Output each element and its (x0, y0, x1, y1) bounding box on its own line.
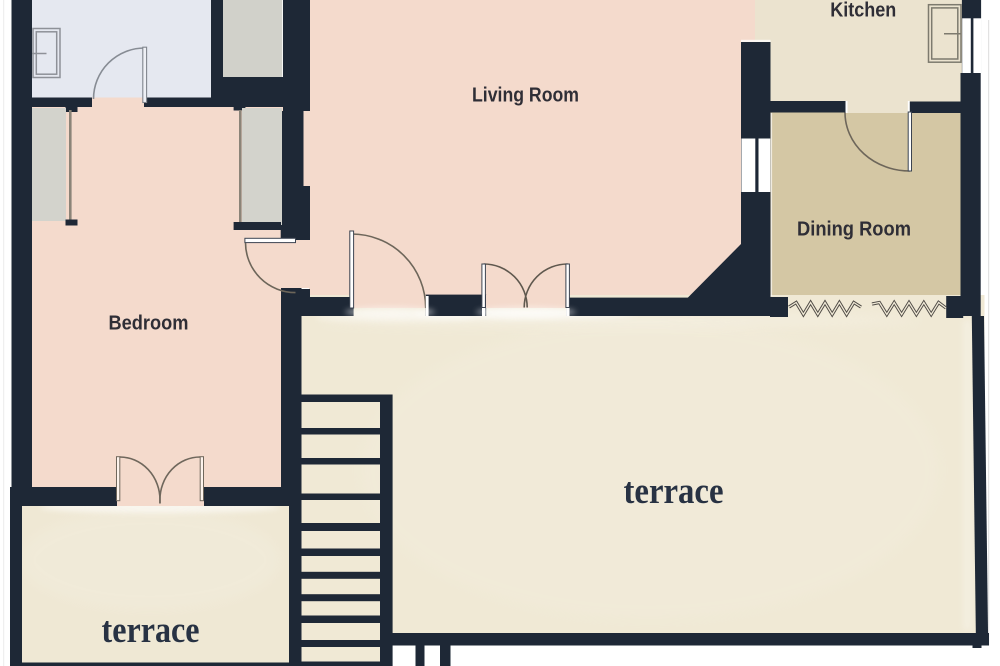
svg-text:Kitchen: Kitchen (830, 0, 896, 22)
svg-text:Living Room: Living Room (472, 84, 579, 106)
svg-text:Dining Room: Dining Room (797, 218, 911, 240)
svg-text:terrace: terrace (624, 471, 724, 512)
svg-text:Bedroom: Bedroom (109, 312, 189, 334)
svg-text:terrace: terrace (102, 610, 200, 651)
